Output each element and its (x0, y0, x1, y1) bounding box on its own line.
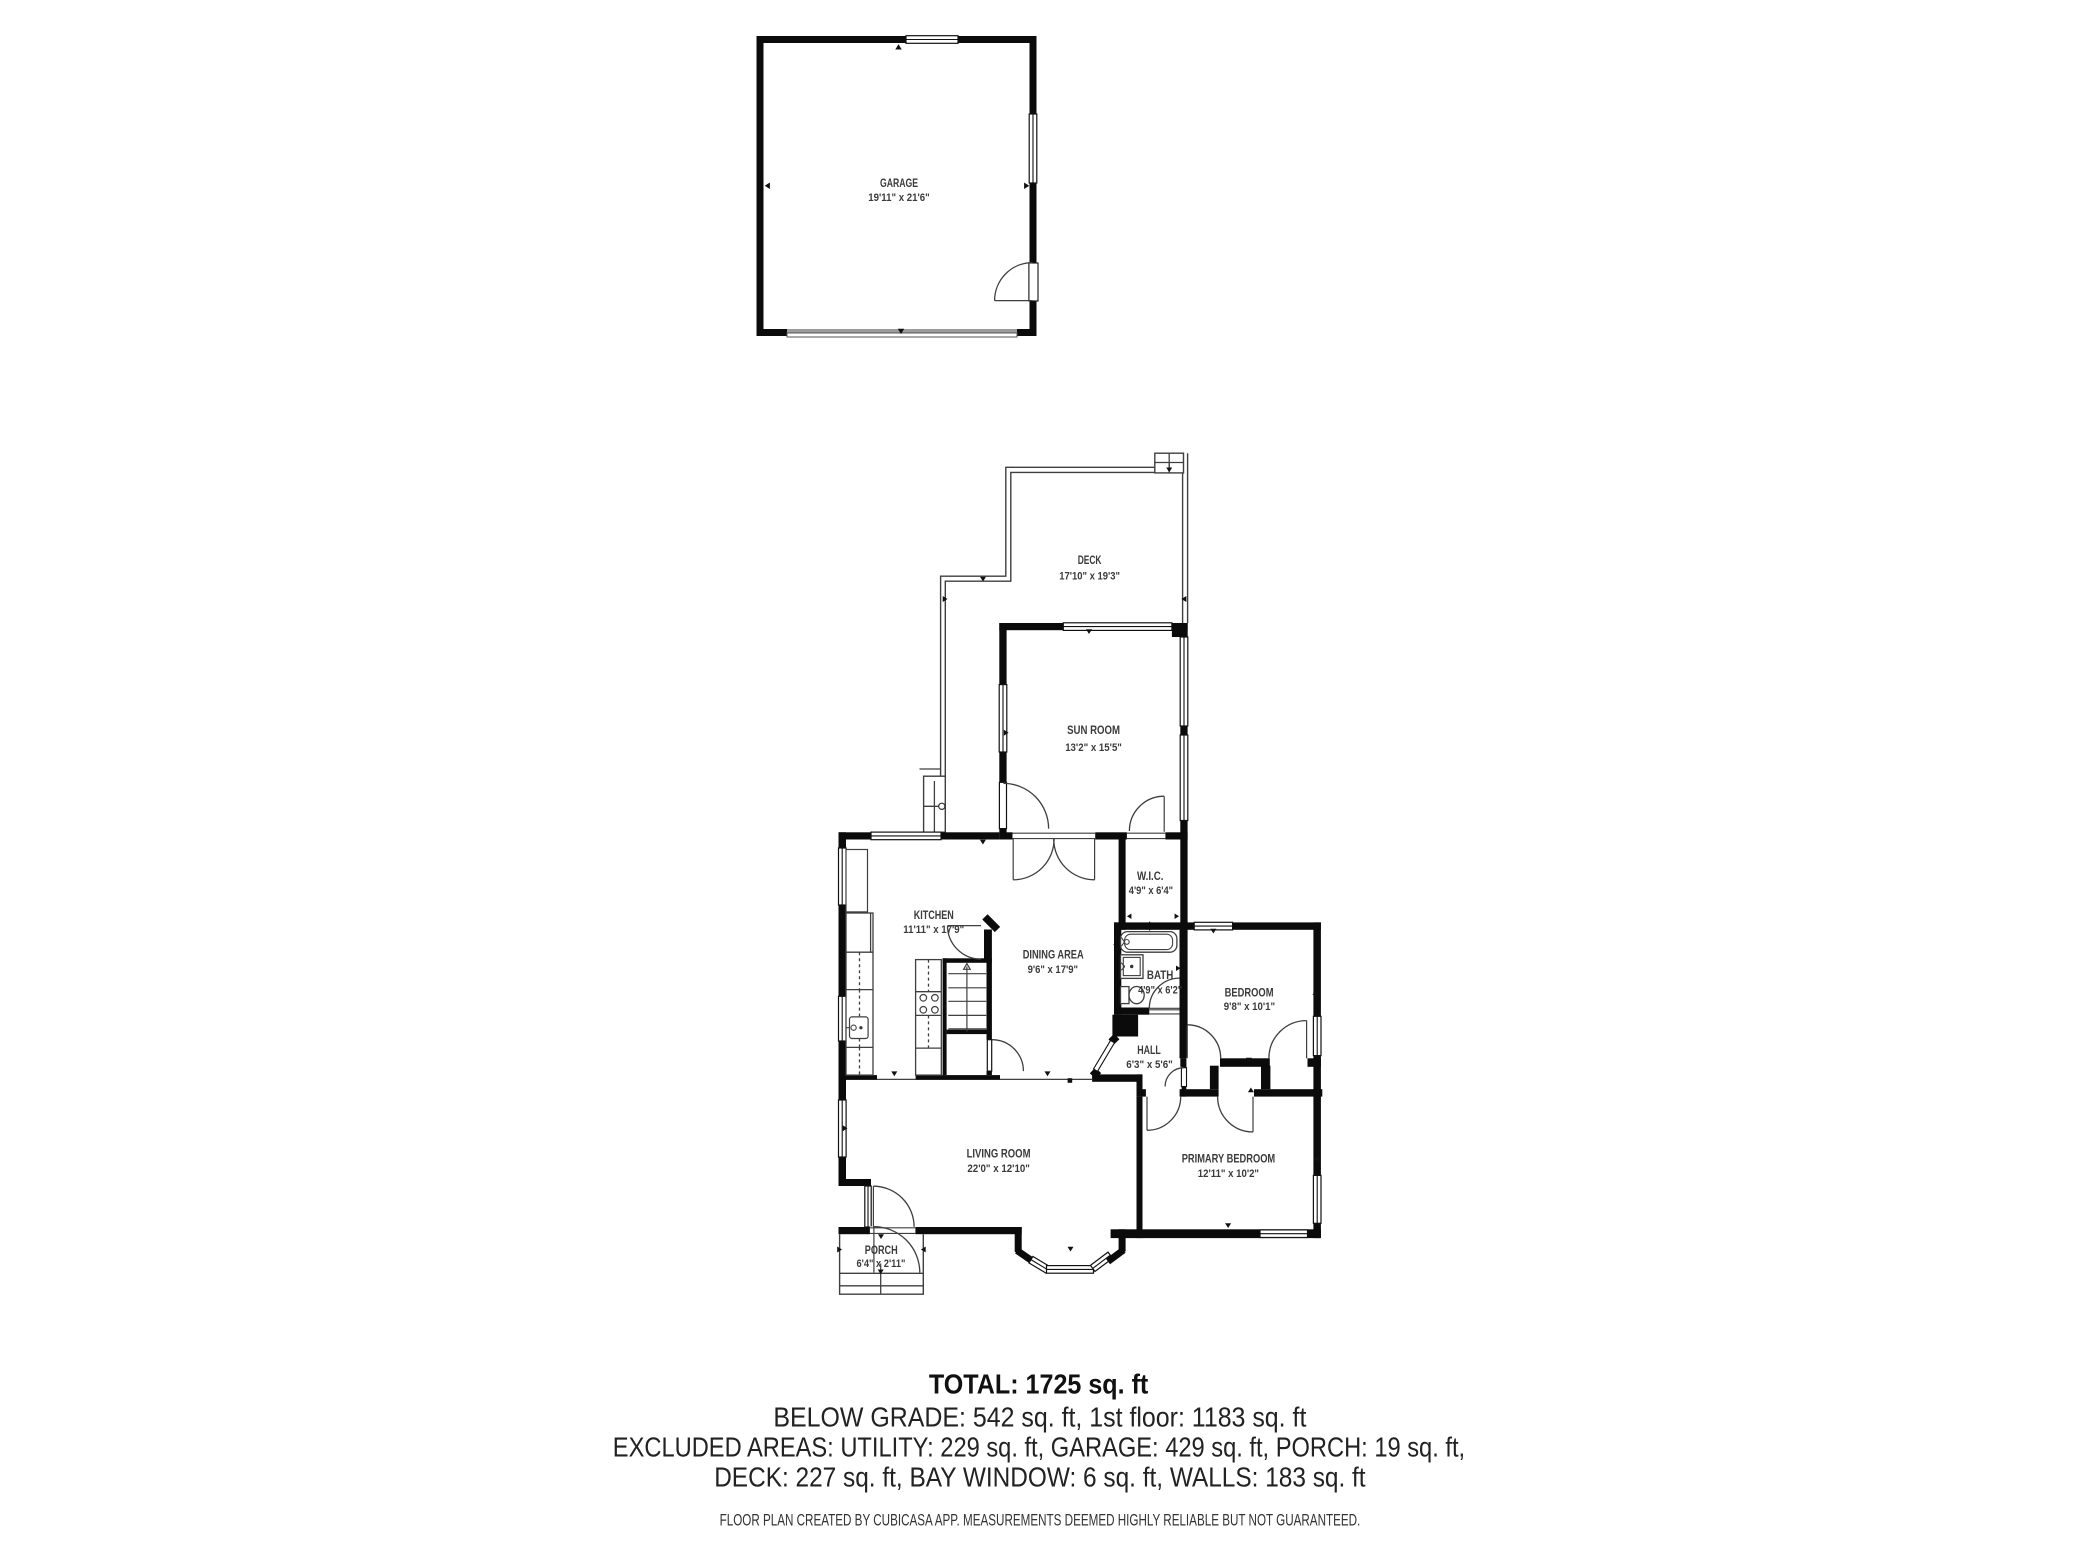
svg-text:22'0" x 12'10": 22'0" x 12'10" (967, 1163, 1030, 1175)
svg-text:DINING AREA: DINING AREA (1023, 950, 1084, 962)
svg-text:DECK: DECK (1078, 555, 1102, 567)
svg-text:GARAGE: GARAGE (880, 178, 918, 190)
svg-text:BELOW GRADE: 542 sq. ft, 1st f: BELOW GRADE: 542 sq. ft, 1st floor: 1183… (773, 1401, 1306, 1433)
svg-text:DECK: 227 sq. ft, BAY WINDOW:: DECK: 227 sq. ft, BAY WINDOW: 6 sq. ft, … (714, 1461, 1366, 1493)
svg-text:17'10" x 19'3": 17'10" x 19'3" (1059, 571, 1120, 583)
svg-text:19'11" x 21'6": 19'11" x 21'6" (868, 192, 929, 204)
svg-text:PORCH: PORCH (865, 1245, 898, 1257)
svg-text:EXCLUDED AREAS: UTILITY: 229 s: EXCLUDED AREAS: UTILITY: 229 sq. ft, GAR… (613, 1431, 1465, 1463)
svg-text:12'11" x 10'2": 12'11" x 10'2" (1198, 1168, 1259, 1180)
svg-text:SUN ROOM: SUN ROOM (1067, 725, 1120, 737)
svg-text:4'9" x 6'4": 4'9" x 6'4" (1129, 885, 1173, 897)
svg-text:11'11" x 17'9": 11'11" x 17'9" (903, 924, 964, 936)
svg-text:W.I.C.: W.I.C. (1137, 871, 1164, 883)
svg-text:6'3" x 5'6": 6'3" x 5'6" (1126, 1059, 1173, 1071)
svg-text:9'8" x 10'1": 9'8" x 10'1" (1224, 1001, 1275, 1013)
svg-text:13'2" x 15'5": 13'2" x 15'5" (1065, 742, 1122, 754)
svg-text:LIVING ROOM: LIVING ROOM (967, 1148, 1031, 1160)
svg-text:BEDROOM: BEDROOM (1225, 988, 1274, 1000)
svg-text:TOTAL: 1725 sq. ft: TOTAL: 1725 sq. ft (929, 1368, 1149, 1400)
svg-text:FLOOR PLAN CREATED BY CUBICASA: FLOOR PLAN CREATED BY CUBICASA APP. MEAS… (720, 1510, 1361, 1529)
svg-text:HALL: HALL (1137, 1045, 1161, 1057)
svg-text:9'6" x 17'9": 9'6" x 17'9" (1028, 964, 1078, 976)
svg-text:PRIMARY BEDROOM: PRIMARY BEDROOM (1182, 1154, 1276, 1166)
svg-text:6'4" x 2'11": 6'4" x 2'11" (857, 1258, 906, 1270)
svg-text:KITCHEN: KITCHEN (914, 910, 954, 922)
svg-text:4'9" x 6'2": 4'9" x 6'2" (1138, 984, 1182, 996)
svg-text:BATH: BATH (1147, 970, 1173, 982)
